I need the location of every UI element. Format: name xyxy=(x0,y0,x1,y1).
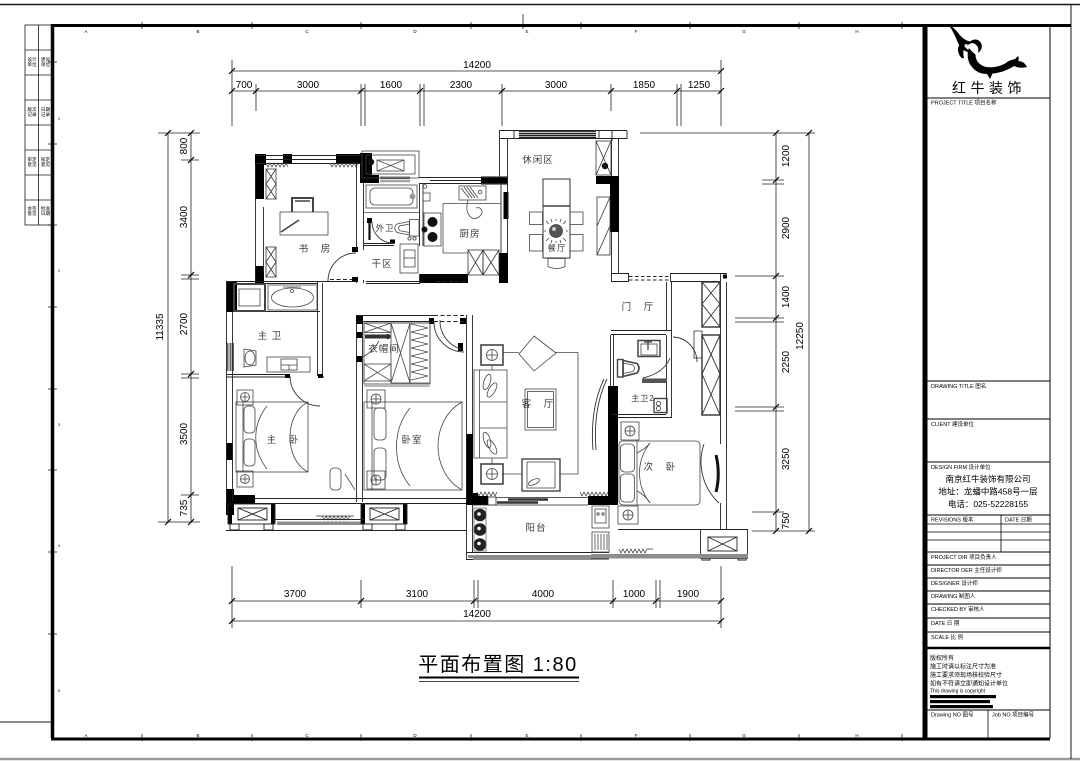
svg-text:E: E xyxy=(525,733,528,738)
svg-text:A: A xyxy=(84,733,87,738)
svg-text:2300: 2300 xyxy=(450,80,473,91)
svg-text:14200: 14200 xyxy=(463,609,491,620)
svg-text:电话：025-52228155: 电话：025-52228155 xyxy=(948,499,1029,509)
svg-text:H: H xyxy=(855,733,858,738)
svg-text:记录: 记录 xyxy=(27,111,37,117)
svg-text:800: 800 xyxy=(179,137,190,154)
svg-text:14200: 14200 xyxy=(463,60,491,71)
svg-text:1600: 1600 xyxy=(380,80,403,91)
svg-text:4000: 4000 xyxy=(532,589,555,600)
svg-text:DRAWING 制图人: DRAWING 制图人 xyxy=(931,592,976,600)
svg-text:单位: 单位 xyxy=(41,61,51,68)
svg-text:3000: 3000 xyxy=(297,80,320,91)
svg-text:CHECKED BY 审核人: CHECKED BY 审核人 xyxy=(931,605,985,613)
svg-text:2900: 2900 xyxy=(781,216,792,239)
svg-text:DRAWING TITLE 图名: DRAWING TITLE 图名 xyxy=(931,382,986,390)
svg-text:750: 750 xyxy=(781,512,792,529)
svg-text:地址：龙蟠中路458号一层: 地址：龙蟠中路458号一层 xyxy=(938,487,1037,497)
svg-text:1000: 1000 xyxy=(623,589,646,600)
svg-text:3500: 3500 xyxy=(179,422,190,445)
svg-text:C: C xyxy=(305,733,309,738)
svg-text:红牛装饰: 红牛装饰 xyxy=(952,80,1026,96)
svg-text:3100: 3100 xyxy=(406,589,429,600)
svg-text:B: B xyxy=(196,29,199,34)
svg-text:1: 1 xyxy=(58,116,61,121)
svg-text:DATE 日 期: DATE 日 期 xyxy=(931,620,960,627)
svg-text:PROJECT DIR 项目负责人: PROJECT DIR 项目负责人 xyxy=(931,553,997,561)
svg-text:次 卧: 次 卧 xyxy=(644,461,681,473)
svg-text:5: 5 xyxy=(58,688,61,693)
svg-text:主 卫: 主 卫 xyxy=(258,330,283,342)
svg-text:厨房: 厨房 xyxy=(459,228,480,240)
svg-text:G: G xyxy=(742,29,746,34)
svg-text:1850: 1850 xyxy=(633,80,656,91)
svg-text:1250: 1250 xyxy=(688,80,711,91)
svg-text:日期: 日期 xyxy=(41,211,51,217)
svg-text:700: 700 xyxy=(236,80,253,91)
svg-text:Drawing NO 图号: Drawing NO 图号 xyxy=(931,711,974,719)
svg-text:4: 4 xyxy=(58,543,61,548)
svg-text:门 厅: 门 厅 xyxy=(622,301,659,313)
svg-text:记录: 记录 xyxy=(41,111,51,117)
svg-text:B: B xyxy=(196,733,199,738)
svg-text:PROJECT TITLE 项目名称: PROJECT TITLE 项目名称 xyxy=(931,99,997,107)
svg-text:3: 3 xyxy=(58,422,61,427)
svg-text:D: D xyxy=(413,733,417,738)
svg-text:735: 735 xyxy=(179,499,190,516)
svg-text:施工要求须现场核校验尺寸: 施工要求须现场核校验尺寸 xyxy=(930,671,1002,679)
svg-text:3400: 3400 xyxy=(179,205,190,228)
svg-text:F: F xyxy=(635,29,638,34)
svg-text:CLIENT 建设单位: CLIENT 建设单位 xyxy=(931,420,974,428)
svg-text:E: E xyxy=(525,29,528,34)
svg-text:客 厅: 客 厅 xyxy=(522,398,559,410)
svg-text:平面布置图 1:80: 平面布置图 1:80 xyxy=(418,653,577,676)
svg-text:3250: 3250 xyxy=(781,447,792,470)
svg-text:意见: 意见 xyxy=(27,161,37,168)
svg-text:Job NO 项目编号: Job NO 项目编号 xyxy=(992,711,1035,719)
svg-text:卧室: 卧室 xyxy=(401,434,422,446)
svg-text:休闲区: 休闲区 xyxy=(522,154,554,166)
svg-text:12250: 12250 xyxy=(795,322,806,350)
svg-text:H: H xyxy=(855,29,858,34)
svg-text:F: F xyxy=(635,733,638,738)
svg-text:施工时请以标注尺寸为准: 施工时请以标注尺寸为准 xyxy=(930,663,996,671)
svg-text:南京红牛装饰有限公司: 南京红牛装饰有限公司 xyxy=(945,474,1030,484)
svg-text:主卫2: 主卫2 xyxy=(631,393,654,403)
svg-text:干区: 干区 xyxy=(371,259,392,270)
svg-text:书 房: 书 房 xyxy=(299,243,336,255)
svg-text:单位: 单位 xyxy=(27,61,37,68)
svg-text:意见: 意见 xyxy=(41,161,51,168)
svg-text:2250: 2250 xyxy=(781,350,792,373)
svg-text:衣帽间: 衣帽间 xyxy=(368,343,400,355)
svg-text:2: 2 xyxy=(58,268,61,273)
svg-text:11335: 11335 xyxy=(155,313,166,341)
svg-text:SCALE 比 例: SCALE 比 例 xyxy=(931,633,964,641)
svg-text:意见: 意见 xyxy=(27,210,37,217)
svg-text:C: C xyxy=(305,29,309,34)
svg-text:D: D xyxy=(413,29,417,34)
svg-text:1900: 1900 xyxy=(677,589,700,600)
svg-text:餐厅: 餐厅 xyxy=(547,243,566,253)
svg-text:2700: 2700 xyxy=(179,312,190,335)
svg-text:REVISIONS 版本: REVISIONS 版本 xyxy=(931,516,974,524)
svg-text:3700: 3700 xyxy=(284,589,307,600)
svg-text:DATE 日期: DATE 日期 xyxy=(1005,517,1032,524)
svg-text:1400: 1400 xyxy=(781,285,792,308)
svg-text:This drawing is copyright: This drawing is copyright xyxy=(930,689,986,695)
svg-text:外卫: 外卫 xyxy=(375,223,394,233)
svg-text:DESIGNER 设计师: DESIGNER 设计师 xyxy=(931,579,978,587)
svg-text:A: A xyxy=(84,29,87,34)
svg-text:版权所有: 版权所有 xyxy=(930,654,954,662)
svg-text:主 卧: 主 卧 xyxy=(267,434,304,446)
svg-text:DIRECTOR DER 主任设计师: DIRECTOR DER 主任设计师 xyxy=(931,566,1002,574)
svg-text:阳台: 阳台 xyxy=(525,522,546,534)
svg-text:G: G xyxy=(742,733,746,738)
svg-text:3000: 3000 xyxy=(545,80,568,91)
svg-text:如有不符请立即通知设计单位: 如有不符请立即通知设计单位 xyxy=(930,680,1008,688)
svg-text:1200: 1200 xyxy=(781,144,792,167)
svg-text:DESIGN FIRM 设计单位: DESIGN FIRM 设计单位 xyxy=(931,463,991,471)
